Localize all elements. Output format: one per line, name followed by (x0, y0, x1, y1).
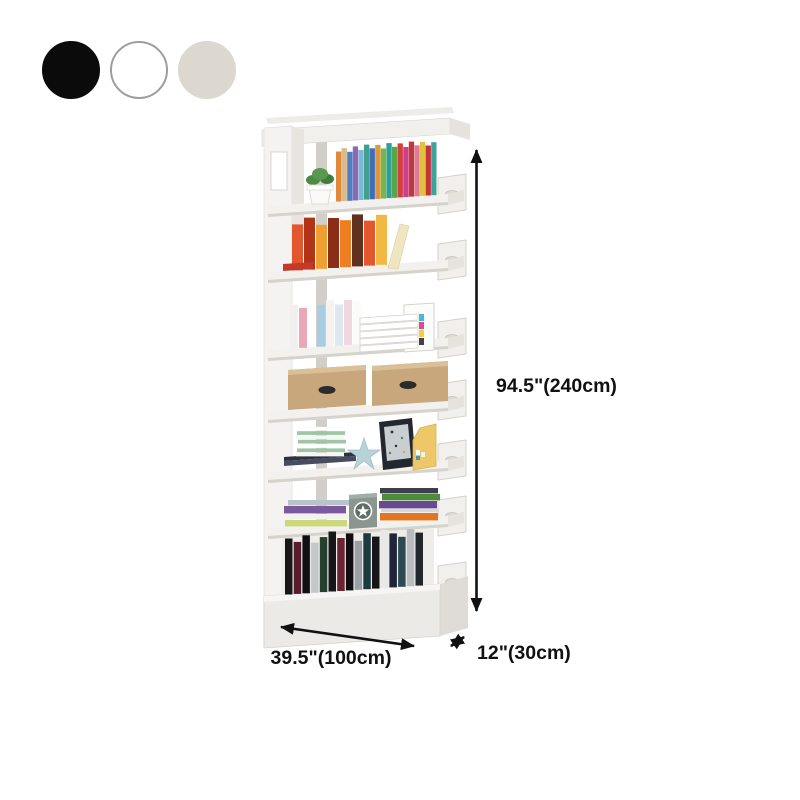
rainbow-books (336, 142, 437, 202)
star-box (349, 493, 377, 529)
depth-dimension-arrow (451, 637, 464, 646)
kraft-box-right (372, 361, 448, 406)
magazine-file (413, 424, 436, 470)
plant (306, 168, 334, 204)
product-page: 94.5"(240cm) 39.5"(100cm) 12"(30cm) (0, 0, 800, 800)
depth-dimension-label: 12"(30cm) (477, 642, 571, 664)
photo-frame (379, 418, 416, 470)
height-dimension-label: 94.5"(240cm) (496, 375, 617, 397)
kraft-box-left (288, 365, 366, 410)
notebook-stack (296, 427, 346, 457)
star-decoration (348, 438, 380, 469)
book-stack-right (379, 488, 440, 520)
warm-books (292, 214, 387, 270)
leaning-book (388, 224, 409, 269)
width-dimension-label: 39.5"(100cm) (271, 647, 392, 669)
product-image: 94.5"(240cm) 39.5"(100cm) 12"(30cm) (0, 0, 800, 800)
book-stack-left (284, 500, 350, 526)
